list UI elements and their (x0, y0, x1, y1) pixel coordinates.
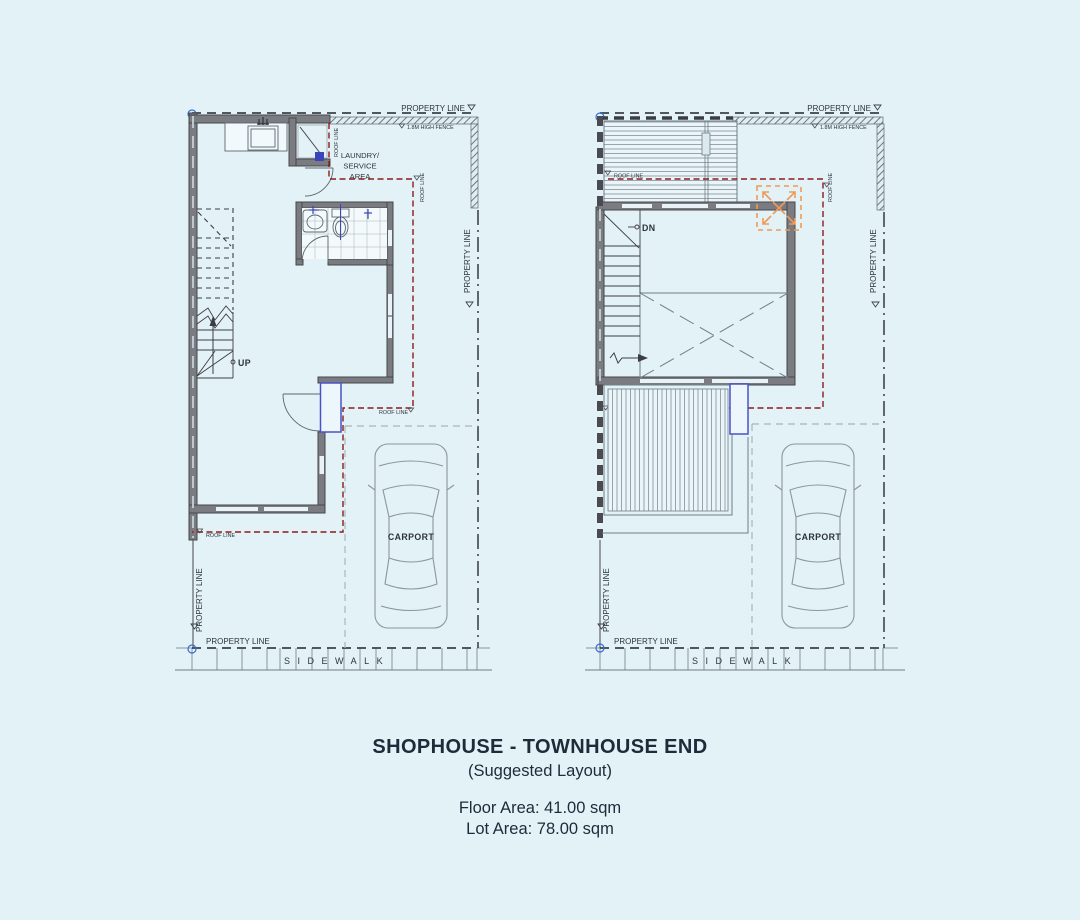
sidewalk: SIDEWALK (175, 648, 492, 670)
perimeter-fence: 1.8M HIGH FENCE (733, 117, 884, 210)
sidewalk: SIDEWALK (585, 648, 905, 670)
window-panel (321, 383, 342, 432)
svg-text:ROOF LINE: ROOF LINE (828, 173, 834, 202)
sidewalk-label: SIDEWALK (284, 656, 390, 666)
property-line-label-left: PROPERTY LINE (195, 568, 204, 632)
svg-text:ROOF LINE: ROOF LINE (420, 173, 426, 202)
sidewalk-label: SIDEWALK (692, 656, 798, 666)
property-line-label-bottom: PROPERTY LINE (614, 637, 678, 646)
drawing-subtitle: (Suggested Layout) (0, 762, 1080, 781)
floor-drain-icon (315, 152, 324, 161)
laundry-area-label: LAUNDRY/ SERVICE AREA (341, 151, 380, 181)
up-label: UP (238, 358, 251, 368)
carport: CARPORT (345, 426, 478, 648)
svg-text:ROOF LINE: ROOF LINE (206, 533, 235, 539)
fence-label: 1.8M HIGH FENCE (407, 125, 454, 131)
property-line-label-right: PROPERTY LINE (463, 229, 472, 293)
property-line-label-bottom: PROPERTY LINE (206, 637, 270, 646)
stair-direction-arrow (638, 354, 648, 362)
property-line-label-right: PROPERTY LINE (869, 229, 878, 293)
carport-label: CARPORT (388, 532, 435, 542)
ground-floor-plan: SIDEWALK PROPERTY LINE PROPERTY LINE PRO… (175, 95, 510, 680)
canopy-roof (602, 385, 748, 533)
staircase-up: UP (197, 208, 251, 378)
lot-area-text: Lot Area: 78.00 sqm (0, 819, 1080, 840)
fence-label: 1.8M HIGH FENCE (820, 125, 867, 131)
carport-label: CARPORT (795, 532, 842, 542)
window-panel (730, 384, 748, 434)
caption-block: SHOPHOUSE - TOWNHOUSE END (Suggested Lay… (0, 736, 1080, 841)
gutter (702, 133, 710, 155)
svg-text:ROOF LINE: ROOF LINE (614, 174, 643, 180)
dn-label: DN (642, 223, 656, 233)
svg-text:SERVICE: SERVICE (343, 162, 376, 171)
entry (283, 383, 341, 432)
property-line-label-left: PROPERTY LINE (602, 568, 611, 632)
bathroom (302, 204, 387, 262)
door-swing (283, 394, 320, 431)
second-floor-plan: SIDEWALK PROPERTY LINE PROPERTY LINE PRO… (585, 95, 915, 680)
carport: CARPORT (752, 424, 884, 648)
svg-text:LAUNDRY/: LAUNDRY/ (341, 151, 380, 160)
staircase-down: DN (604, 210, 656, 363)
floor-plan-sheet: SIDEWALK PROPERTY LINE PROPERTY LINE PRO… (0, 0, 1080, 920)
svg-text:ROOF LINE: ROOF LINE (334, 128, 340, 157)
floor-area-text: Floor Area: 41.00 sqm (0, 798, 1080, 819)
property-line-label-top: PROPERTY LINE (807, 104, 871, 113)
roof-deck-top (598, 118, 737, 207)
svg-text:ROOF LINE: ROOF LINE (379, 410, 408, 416)
drawing-title: SHOPHOUSE - TOWNHOUSE END (0, 736, 1080, 759)
property-line-label-top: PROPERTY LINE (401, 104, 465, 113)
open-area-cross (640, 293, 788, 378)
